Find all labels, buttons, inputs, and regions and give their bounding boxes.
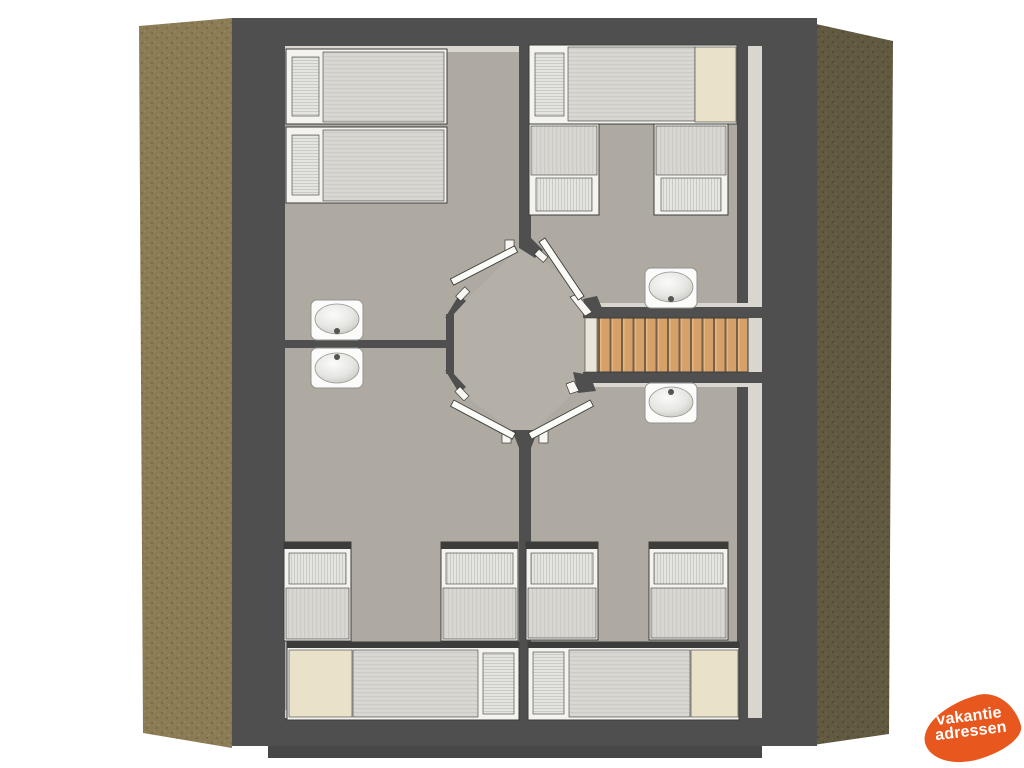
bed-pillow xyxy=(292,57,319,116)
bed-blanket xyxy=(568,47,695,121)
bed-mattress xyxy=(289,650,352,717)
floorplan-canvas xyxy=(0,0,1024,768)
bed-blanket xyxy=(651,588,726,638)
bed-pillow xyxy=(661,178,721,211)
roof-panel-right xyxy=(813,24,893,745)
bed-blanket xyxy=(323,130,444,201)
vakantieadressen-logo: vakantie adressen xyxy=(916,692,1024,766)
hall-wall-left xyxy=(446,314,454,374)
bed xyxy=(654,124,728,215)
stair-wall-lower xyxy=(583,372,762,383)
bed-headboard xyxy=(526,542,598,549)
sink xyxy=(645,268,697,308)
bed-pillow xyxy=(446,553,513,584)
roof-panel-left xyxy=(139,18,232,748)
faucet-icon xyxy=(334,354,340,360)
bed-blanket xyxy=(353,650,478,717)
staircase xyxy=(585,318,748,372)
bed-pillow xyxy=(533,652,564,714)
bed xyxy=(528,642,739,720)
sink xyxy=(645,383,697,423)
bed-blanket xyxy=(443,588,516,639)
bed-pillow xyxy=(483,653,514,714)
bed xyxy=(287,642,519,720)
bed xyxy=(286,127,447,203)
bed-headboard xyxy=(528,642,739,648)
bed-blanket xyxy=(531,126,597,175)
faucet-icon xyxy=(334,328,340,334)
left-room-wall xyxy=(285,340,446,348)
bed-blanket xyxy=(323,52,444,122)
bed-mattress xyxy=(695,47,736,122)
right-edge-wall-top xyxy=(737,46,748,308)
wall-top xyxy=(232,18,817,46)
wall-left xyxy=(232,18,285,746)
wall-bottom xyxy=(232,718,817,746)
bed xyxy=(286,49,447,124)
bed-blanket xyxy=(656,126,726,175)
bed-pillow xyxy=(292,135,319,195)
bed-headboard xyxy=(287,642,519,648)
bed-pillow xyxy=(531,553,593,584)
bed-mattress xyxy=(691,650,738,717)
bed xyxy=(284,542,351,641)
bed-pillow xyxy=(535,53,564,116)
bed-headboard xyxy=(649,542,728,549)
bed-blanket xyxy=(569,650,690,717)
bed xyxy=(441,542,518,641)
stair-wall-upper xyxy=(583,307,762,318)
bed-blanket xyxy=(286,588,349,639)
bed-pillow xyxy=(536,178,592,211)
stair-steps xyxy=(597,318,748,372)
bed-blanket xyxy=(528,588,596,638)
bed xyxy=(526,542,598,640)
sink xyxy=(311,300,363,340)
bed xyxy=(649,542,728,640)
bed-headboard xyxy=(284,542,351,549)
bed xyxy=(529,124,599,215)
faucet-icon xyxy=(668,389,674,395)
wall-bottom-step xyxy=(268,746,762,758)
sink xyxy=(311,348,363,388)
wall-right xyxy=(762,18,817,746)
floorplan-render: vakantie adressen xyxy=(0,0,1024,768)
bed xyxy=(529,45,737,124)
bed-pillow xyxy=(289,553,346,584)
bed-pillow xyxy=(654,553,723,584)
faucet-icon xyxy=(668,296,674,302)
stair-first-tread xyxy=(585,318,597,372)
bed-headboard xyxy=(441,542,518,549)
